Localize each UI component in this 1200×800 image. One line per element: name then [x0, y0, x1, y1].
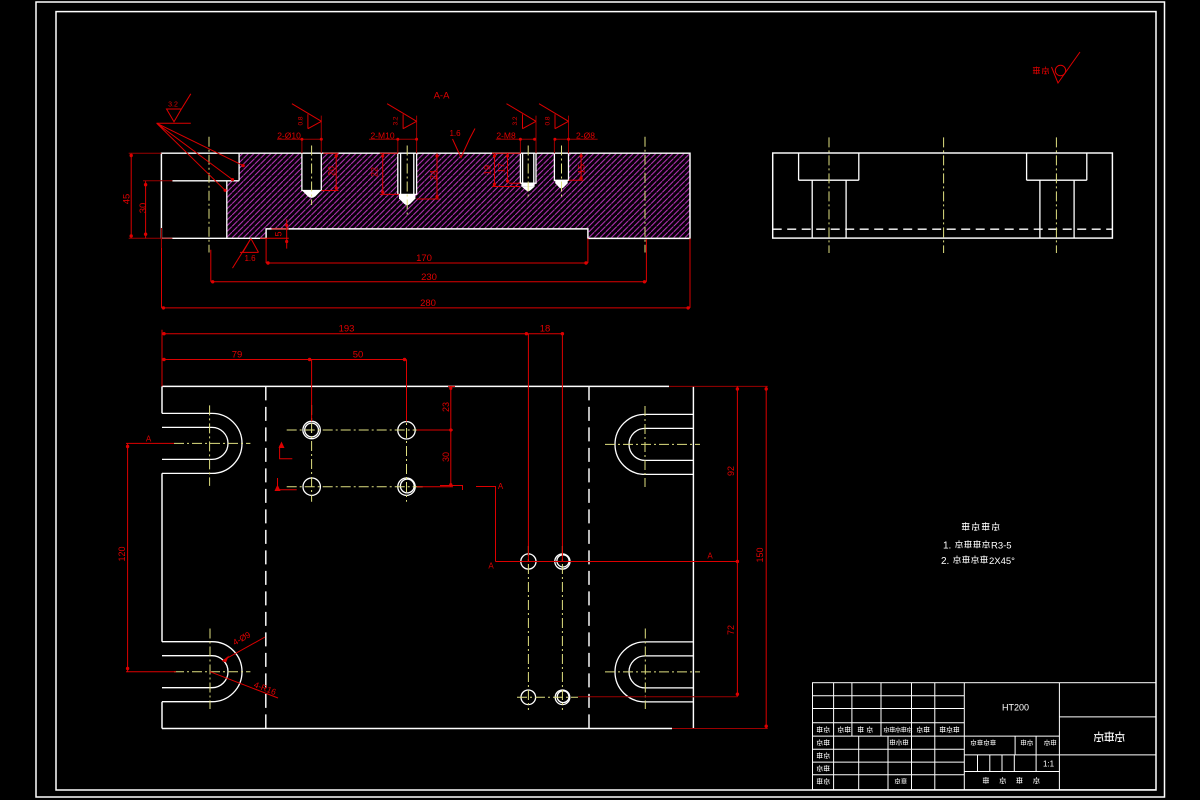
svg-text:5: 5 — [274, 231, 284, 236]
svg-text:0.8: 0.8 — [297, 116, 304, 125]
svg-text:19: 19 — [483, 165, 493, 175]
svg-text:A: A — [146, 435, 152, 444]
svg-text:2.: 2. — [941, 556, 949, 567]
svg-text:1.: 1. — [943, 541, 951, 552]
svg-text:72: 72 — [726, 625, 736, 635]
svg-text:HT200: HT200 — [1002, 703, 1029, 713]
svg-text:30: 30 — [441, 452, 451, 462]
svg-text:3.2: 3.2 — [393, 116, 400, 125]
svg-text:2X45°: 2X45° — [989, 556, 1015, 567]
svg-text:1.6: 1.6 — [244, 254, 256, 263]
svg-text:170: 170 — [416, 253, 432, 264]
svg-text:15: 15 — [577, 164, 587, 174]
svg-text:92: 92 — [726, 466, 736, 476]
svg-text:3.2: 3.2 — [512, 116, 519, 125]
svg-text:3.2: 3.2 — [168, 102, 178, 109]
svg-text:24: 24 — [429, 170, 439, 180]
svg-text:230: 230 — [421, 272, 437, 283]
svg-text:50: 50 — [353, 350, 364, 361]
svg-text:A: A — [488, 562, 494, 571]
svg-text:22: 22 — [370, 167, 380, 177]
svg-text:17: 17 — [497, 163, 507, 173]
svg-text:A: A — [498, 482, 504, 491]
svg-text:1:1: 1:1 — [1043, 760, 1055, 769]
svg-text:193: 193 — [339, 324, 355, 335]
svg-text:30: 30 — [138, 203, 149, 214]
svg-text:280: 280 — [420, 298, 436, 309]
svg-text:A: A — [707, 552, 713, 561]
svg-text:150: 150 — [755, 547, 765, 562]
svg-text:0.8: 0.8 — [545, 116, 552, 125]
svg-text:R3-5: R3-5 — [991, 541, 1012, 552]
svg-text:1.6: 1.6 — [449, 129, 461, 138]
svg-text:120: 120 — [117, 546, 127, 561]
svg-text:23: 23 — [441, 402, 451, 412]
svg-text:79: 79 — [232, 350, 243, 361]
svg-text:45: 45 — [122, 194, 133, 205]
svg-text:A-A: A-A — [434, 91, 451, 102]
svg-text:20: 20 — [327, 166, 337, 176]
svg-text:18: 18 — [540, 324, 551, 335]
